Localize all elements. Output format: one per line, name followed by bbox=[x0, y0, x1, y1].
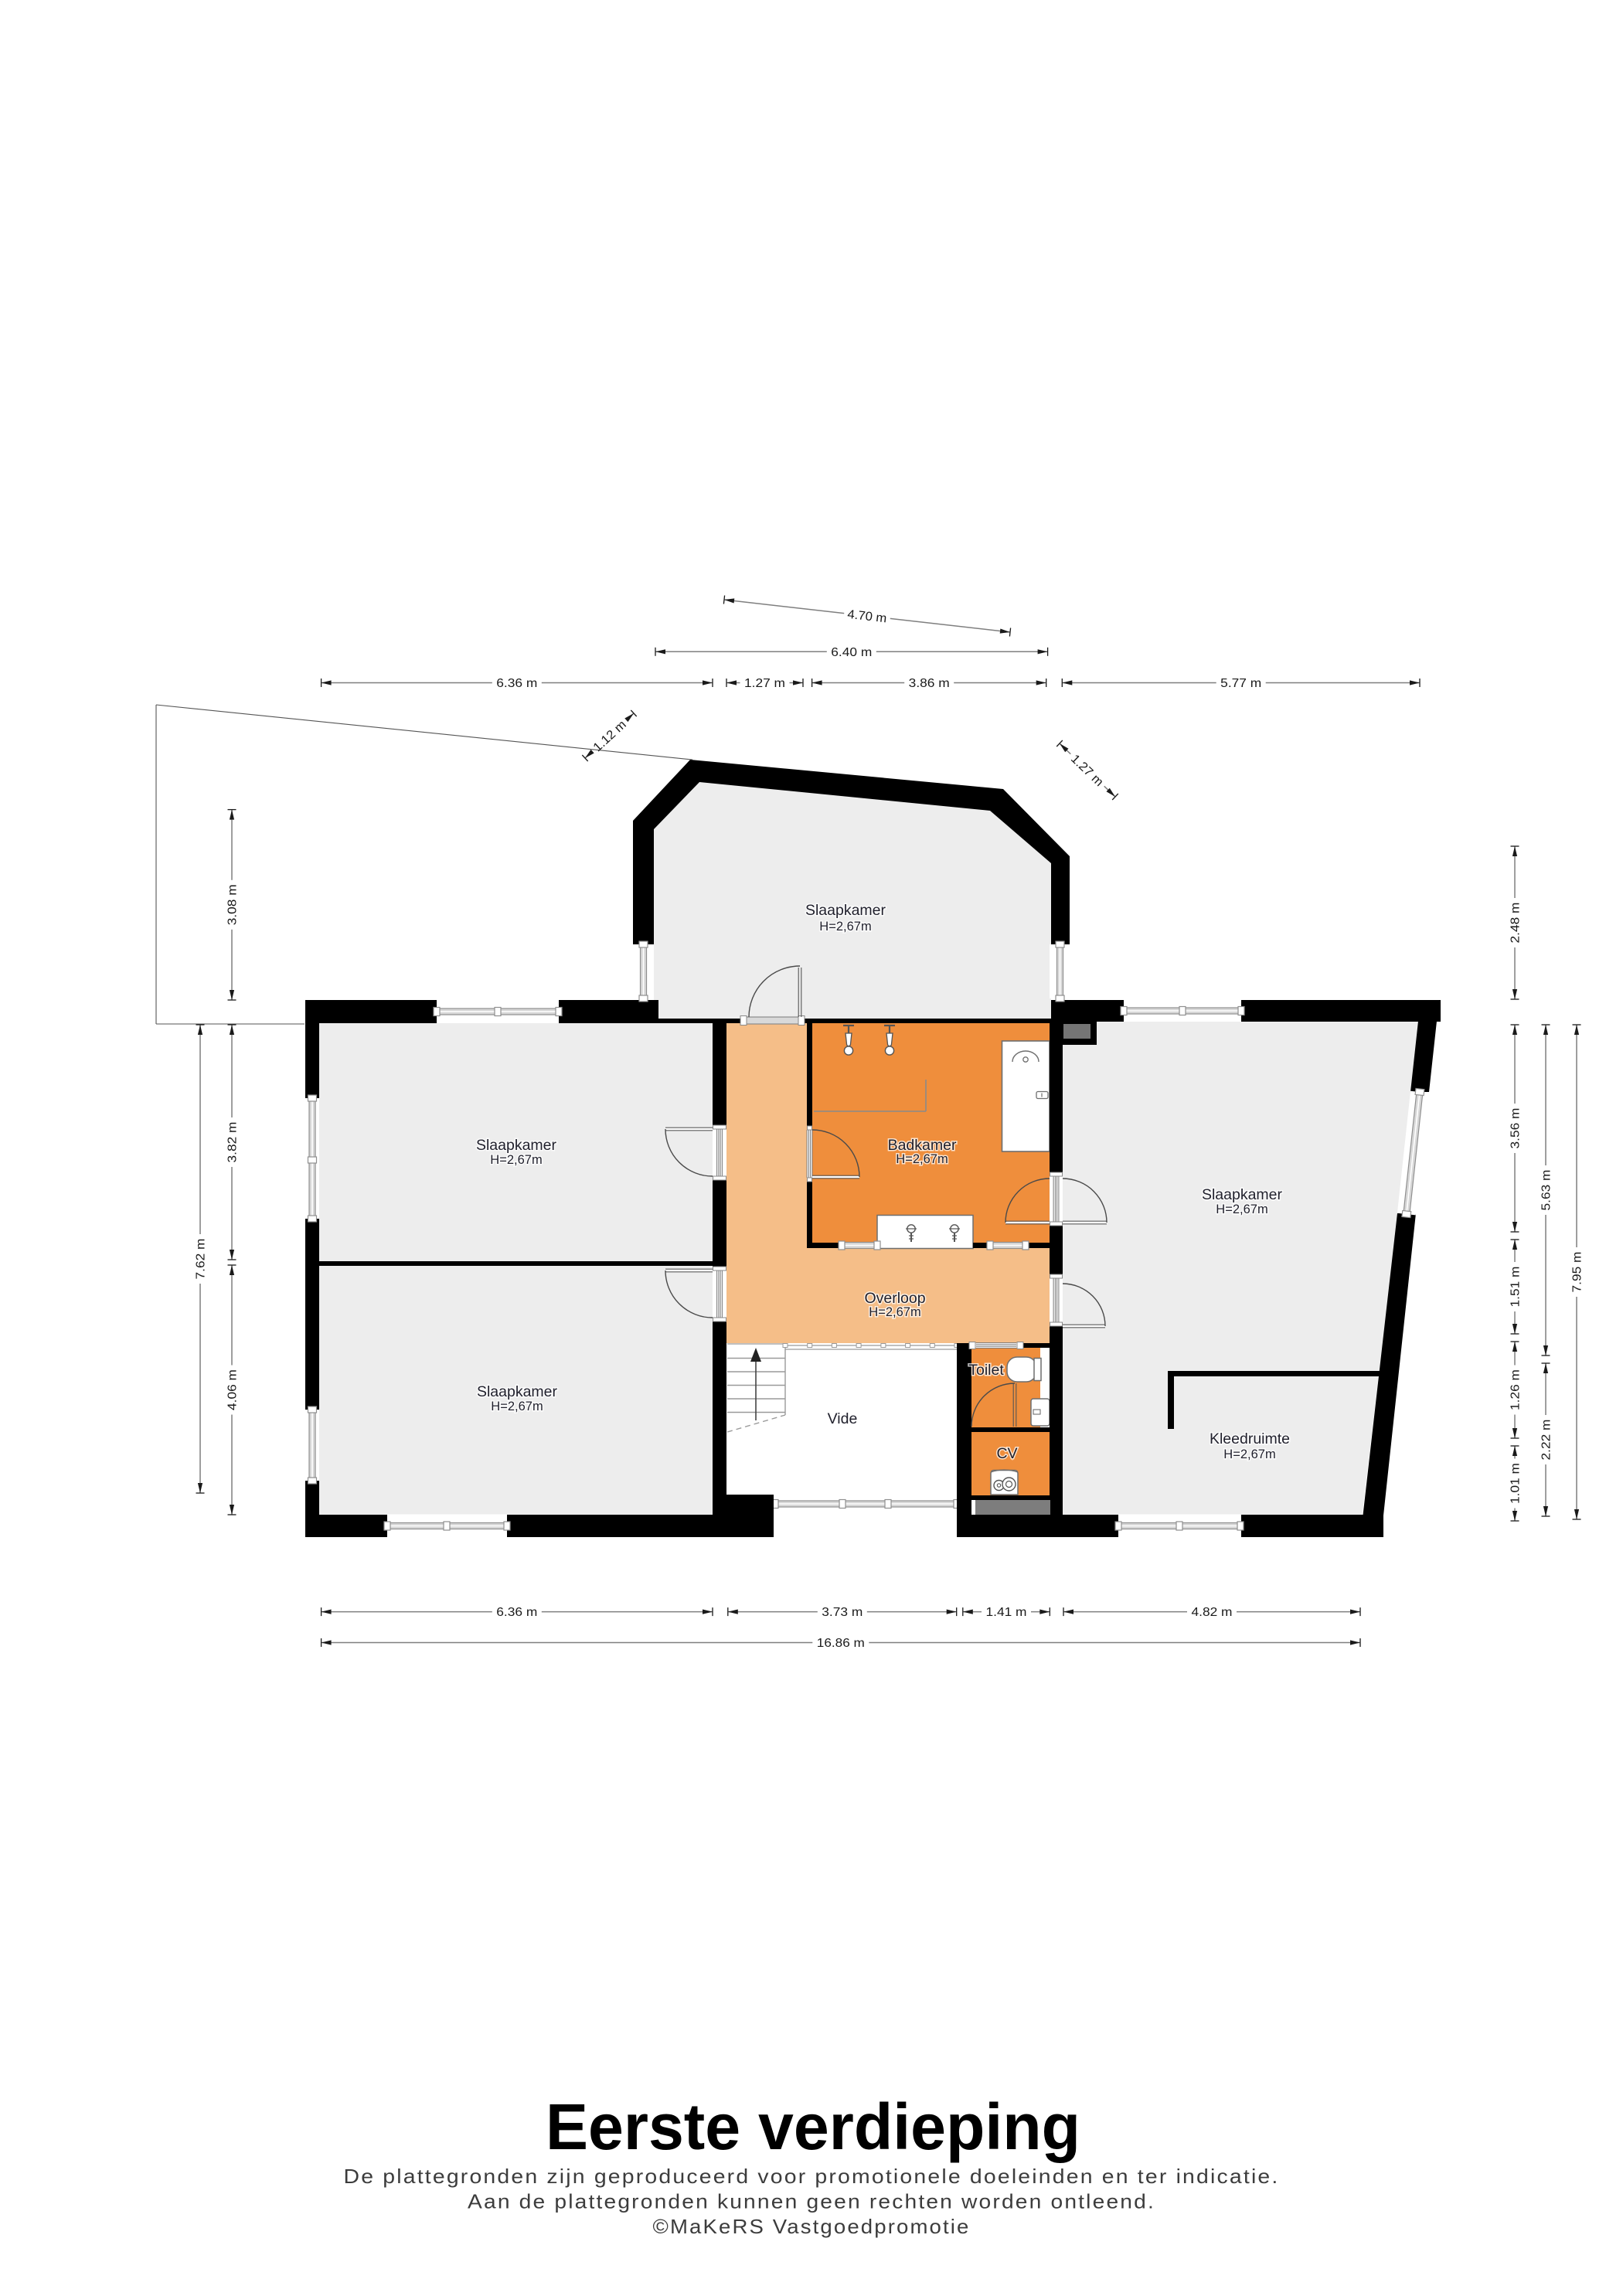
svg-text:H=2,67m: H=2,67m bbox=[869, 1305, 920, 1319]
svg-text:1.41 m: 1.41 m bbox=[986, 1606, 1027, 1619]
svg-text:Slaapkamer: Slaapkamer bbox=[805, 902, 886, 919]
svg-text:6.36 m: 6.36 m bbox=[496, 1606, 537, 1619]
svg-text:3.56 m: 3.56 m bbox=[1509, 1108, 1523, 1149]
svg-text:H=2,67m: H=2,67m bbox=[1216, 1202, 1267, 1216]
svg-text:©MaKeRS Vastgoedpromotie: ©MaKeRS Vastgoedpromotie bbox=[653, 2215, 971, 2238]
svg-text:3.08 m: 3.08 m bbox=[226, 884, 240, 925]
svg-text:H=2,67m: H=2,67m bbox=[819, 920, 871, 934]
svg-text:Toilet: Toilet bbox=[968, 1362, 1004, 1379]
svg-text:5.63 m: 5.63 m bbox=[1540, 1170, 1553, 1211]
svg-text:7.95 m: 7.95 m bbox=[1571, 1252, 1584, 1293]
svg-text:3.73 m: 3.73 m bbox=[822, 1606, 863, 1619]
svg-text:De plattegronden zijn geproduc: De plattegronden zijn geproduceerd voor … bbox=[344, 2165, 1280, 2188]
svg-text:3.82 m: 3.82 m bbox=[226, 1122, 240, 1163]
svg-text:Slaapkamer: Slaapkamer bbox=[1202, 1186, 1283, 1203]
svg-text:Kleedruimte: Kleedruimte bbox=[1210, 1430, 1290, 1447]
svg-text:6.36 m: 6.36 m bbox=[496, 677, 537, 690]
svg-text:1.51 m: 1.51 m bbox=[1509, 1267, 1523, 1308]
svg-text:Vide: Vide bbox=[828, 1410, 858, 1427]
svg-text:Overloop: Overloop bbox=[864, 1290, 925, 1307]
svg-text:H=2,67m: H=2,67m bbox=[896, 1152, 948, 1166]
svg-text:H=2,67m: H=2,67m bbox=[1223, 1447, 1275, 1461]
svg-text:6.40 m: 6.40 m bbox=[831, 646, 872, 659]
svg-text:Slaapkamer: Slaapkamer bbox=[476, 1137, 557, 1154]
svg-text:Eerste verdieping: Eerste verdieping bbox=[546, 2090, 1080, 2163]
svg-text:CV: CV bbox=[996, 1445, 1017, 1462]
svg-text:Aan de plattegronden kunnen ge: Aan de plattegronden kunnen geen rechten… bbox=[468, 2190, 1155, 2213]
svg-text:4.06 m: 4.06 m bbox=[226, 1369, 240, 1410]
svg-text:Slaapkamer: Slaapkamer bbox=[477, 1383, 558, 1400]
svg-text:7.62 m: 7.62 m bbox=[195, 1239, 208, 1280]
svg-text:1.26 m: 1.26 m bbox=[1509, 1369, 1523, 1410]
svg-text:Badkamer: Badkamer bbox=[888, 1137, 957, 1154]
svg-text:4.82 m: 4.82 m bbox=[1192, 1606, 1233, 1619]
svg-text:2.22 m: 2.22 m bbox=[1540, 1420, 1553, 1461]
svg-text:2.48 m: 2.48 m bbox=[1509, 903, 1523, 944]
svg-text:1.01 m: 1.01 m bbox=[1509, 1463, 1523, 1504]
svg-text:5.77 m: 5.77 m bbox=[1220, 677, 1261, 690]
svg-text:H=2,67m: H=2,67m bbox=[491, 1400, 543, 1413]
svg-text:16.86 m: 16.86 m bbox=[817, 1637, 865, 1650]
svg-text:3.86 m: 3.86 m bbox=[909, 677, 950, 690]
svg-text:H=2,67m: H=2,67m bbox=[490, 1153, 542, 1167]
svg-text:1.27 m: 1.27 m bbox=[744, 677, 785, 690]
